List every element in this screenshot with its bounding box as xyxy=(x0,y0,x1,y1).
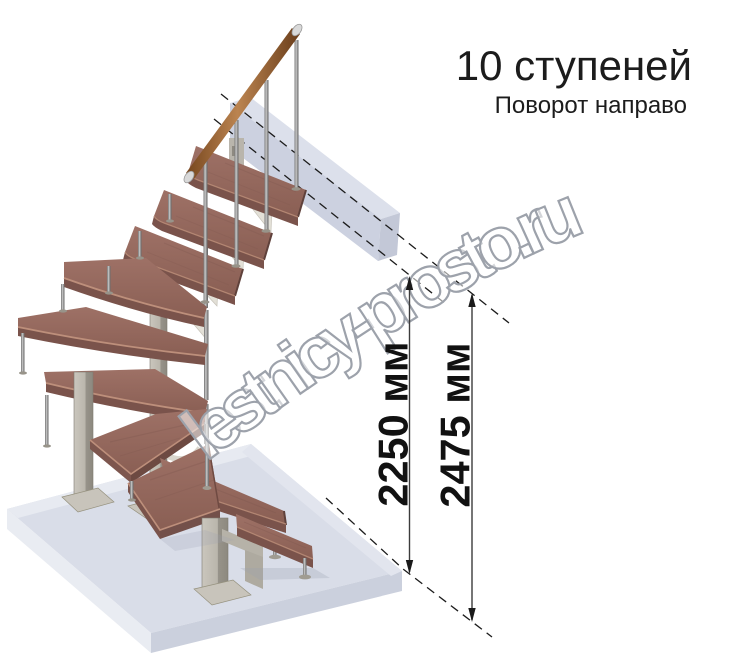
svg-text:2475 мм: 2475 мм xyxy=(432,342,479,507)
svg-text:Поворот направо: Поворот направо xyxy=(495,92,687,119)
svg-text:10 ступеней: 10 ступеней xyxy=(456,42,692,89)
svg-text:2250 мм: 2250 мм xyxy=(370,341,417,506)
